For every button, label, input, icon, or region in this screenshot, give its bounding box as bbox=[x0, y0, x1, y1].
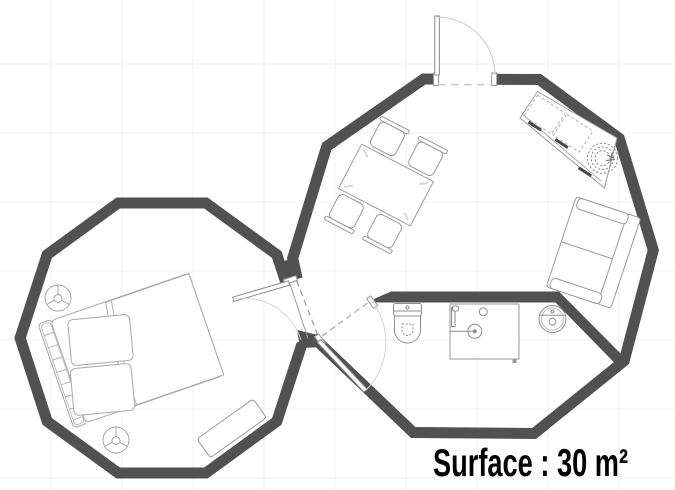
svg-text:Surface : 30 m²: Surface : 30 m² bbox=[433, 442, 628, 485]
